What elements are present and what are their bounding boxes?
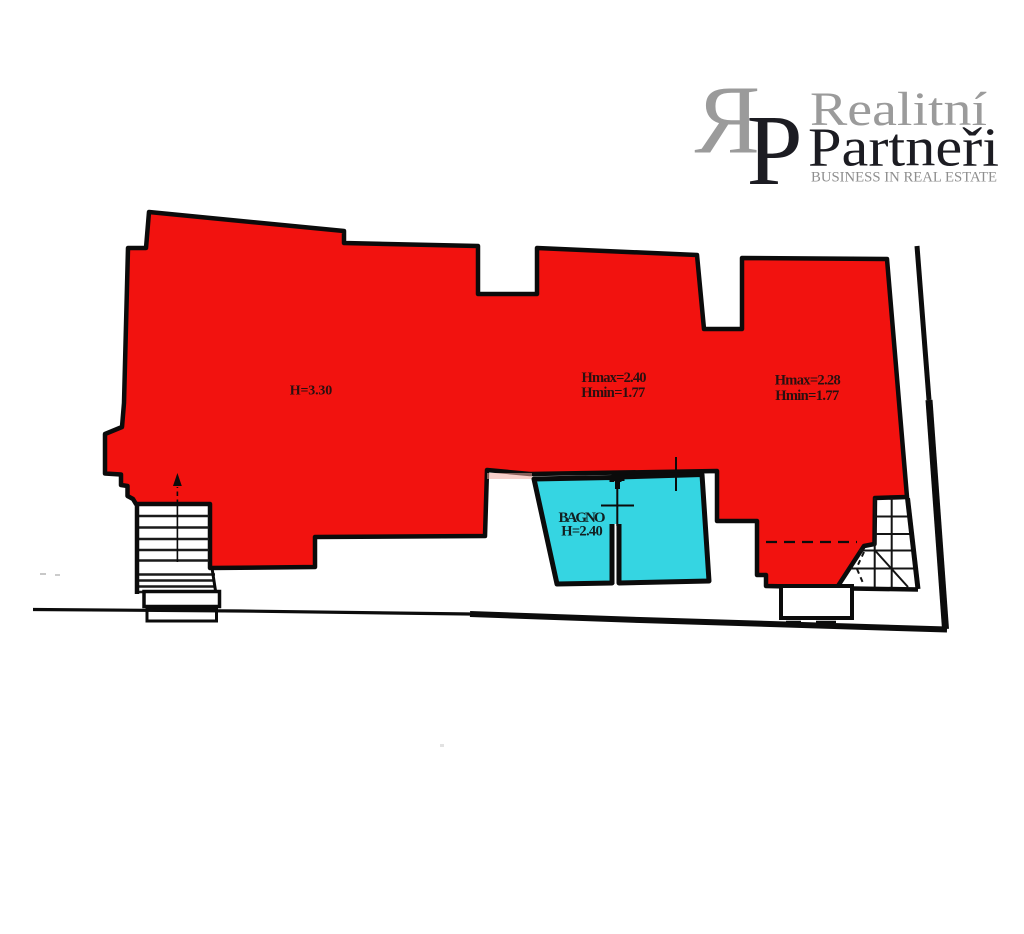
svg-text:Hmax=2.28: Hmax=2.28 — [775, 373, 841, 389]
svg-text:H=3.30: H=3.30 — [290, 384, 333, 399]
svg-text:Partneři: Partneři — [808, 117, 999, 178]
svg-text:H=2.40: H=2.40 — [561, 524, 603, 540]
svg-text:Hmax=2.40: Hmax=2.40 — [582, 370, 647, 386]
svg-text:Hmin=1.77: Hmin=1.77 — [581, 385, 645, 401]
svg-text:Hmin=1.77: Hmin=1.77 — [775, 388, 839, 404]
svg-text:BUSINESS IN REAL ESTATE: BUSINESS IN REAL ESTATE — [811, 170, 997, 186]
svg-text:P: P — [747, 94, 803, 206]
